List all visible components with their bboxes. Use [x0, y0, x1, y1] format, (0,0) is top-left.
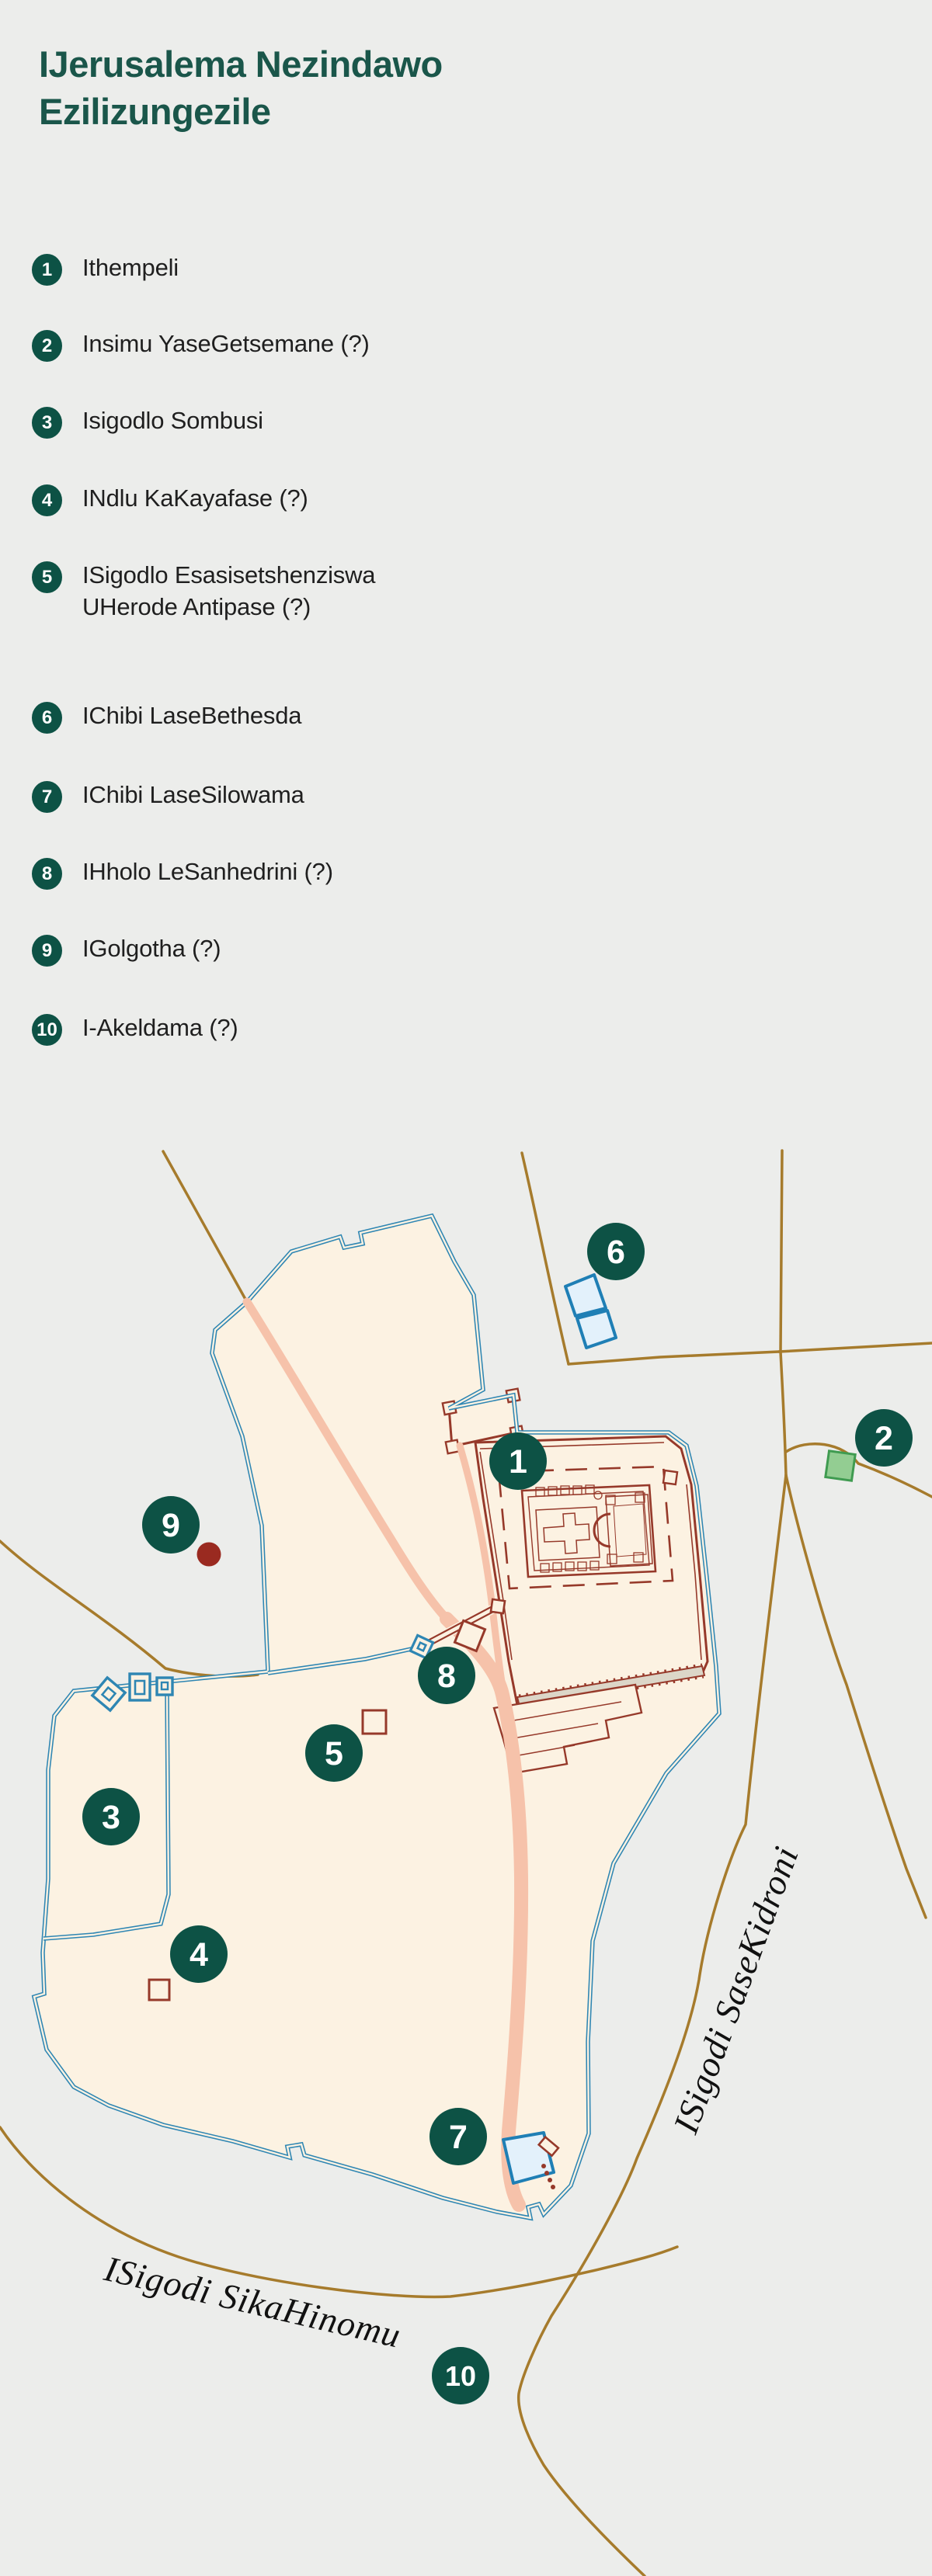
road-east-vertical [781, 1151, 786, 1475]
bethesda-pool-north [565, 1275, 606, 1316]
map-badge-8: 8 [418, 1647, 475, 1704]
svg-text:6: 6 [607, 1234, 625, 1271]
svg-text:1: 1 [509, 1443, 527, 1481]
road-north [522, 1153, 569, 1364]
herod-antipas-palace-marker [363, 1710, 386, 1734]
svg-text:5: 5 [325, 1735, 343, 1772]
tower-phasael [130, 1674, 150, 1700]
svg-text:3: 3 [102, 1799, 120, 1836]
temple-ne-gate [663, 1470, 677, 1484]
map-badge-1: 1 [489, 1432, 547, 1490]
road-kidron-east-branch [786, 1475, 926, 1918]
caiaphas-house-marker [149, 1980, 169, 2000]
road-west [0, 1541, 258, 1676]
hinnom-valley-label: ISigodi SikaHinomu [100, 2248, 405, 2356]
svg-text:8: 8 [437, 1658, 456, 1695]
road-northwest [163, 1151, 247, 1302]
gethsemane-garden [826, 1451, 855, 1481]
svg-text:2: 2 [875, 1420, 893, 1457]
svg-text:9: 9 [162, 1507, 180, 1544]
map-badge-7: 7 [429, 2108, 487, 2165]
map-badge-2: 2 [855, 1409, 913, 1467]
map-badge-10: 10 [432, 2347, 489, 2404]
map-badge-3: 3 [82, 1788, 140, 1845]
road-east-exit [779, 1343, 932, 1352]
svg-text:10: 10 [445, 2360, 476, 2392]
page: IJerusalema Nezindawo Ezilizungezile 1It… [0, 0, 932, 2576]
tower-mariamne [157, 1678, 172, 1695]
map-badge-6: 6 [587, 1223, 645, 1280]
map-badge-4: 4 [170, 1925, 228, 1983]
bethesda-pool-south [577, 1311, 616, 1348]
svg-text:7: 7 [449, 2119, 468, 2156]
golgotha-marker [197, 1543, 221, 1567]
svg-text:4: 4 [190, 1936, 208, 1974]
temple-west-gate [491, 1599, 505, 1613]
kidron-valley-label: ISigodi SaseKidroni [666, 1841, 806, 2139]
jerusalem-map: 12345678910 ISigodi SaseKidroni ISigodi … [0, 0, 932, 2576]
map-badge-9: 9 [142, 1496, 200, 1554]
road-north-east-link [569, 1352, 779, 1364]
map-badge-5: 5 [305, 1724, 363, 1782]
